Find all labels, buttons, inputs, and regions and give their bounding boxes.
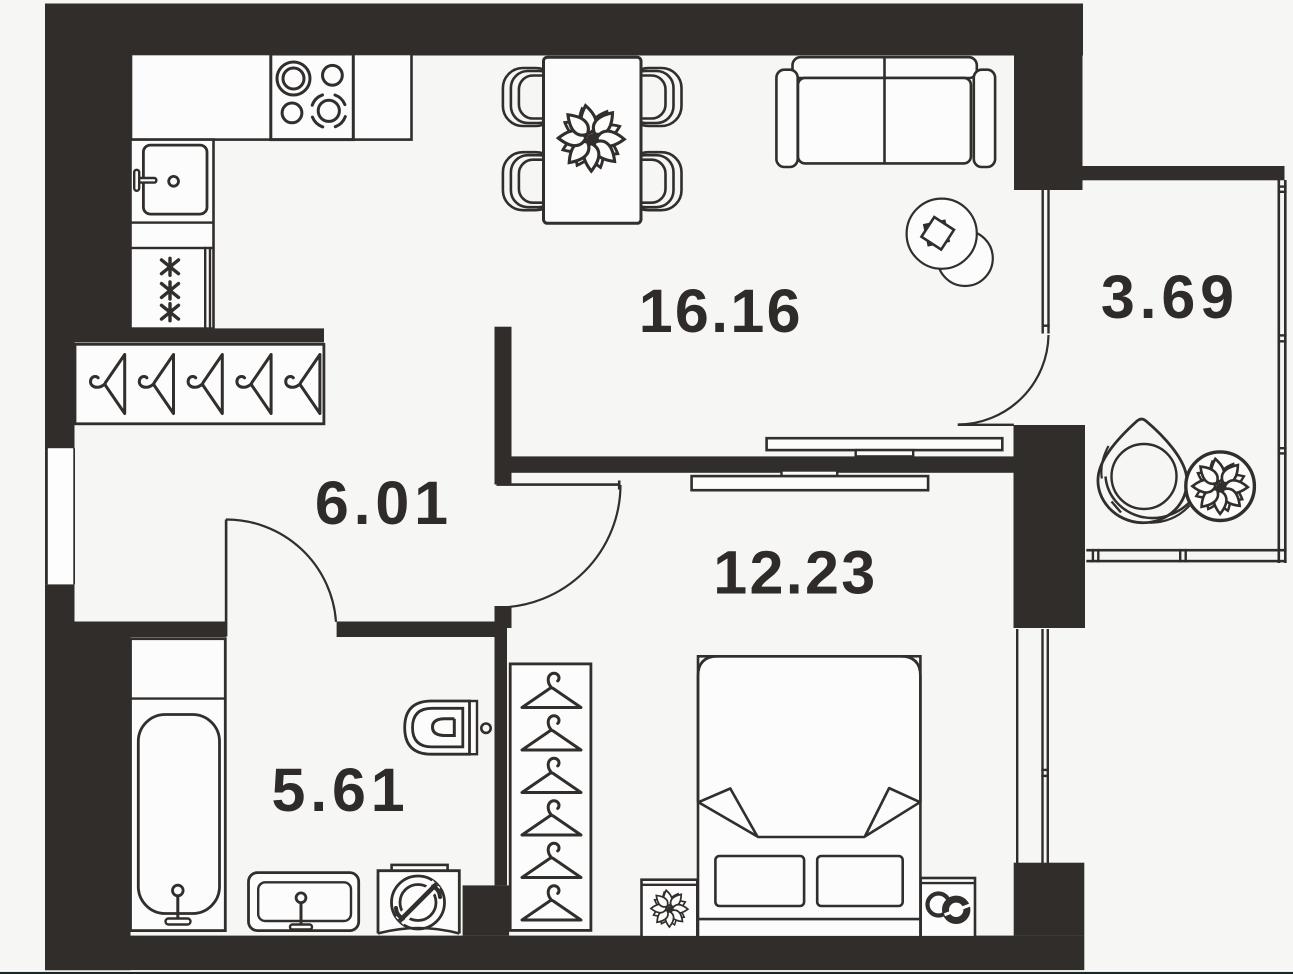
svg-text:16.16: 16.16 (639, 277, 803, 345)
svg-text:12.23: 12.23 (713, 539, 877, 607)
svg-text:6.01: 6.01 (315, 469, 453, 537)
svg-text:3.69: 3.69 (1101, 263, 1239, 331)
svg-text:5.61: 5.61 (272, 756, 410, 824)
